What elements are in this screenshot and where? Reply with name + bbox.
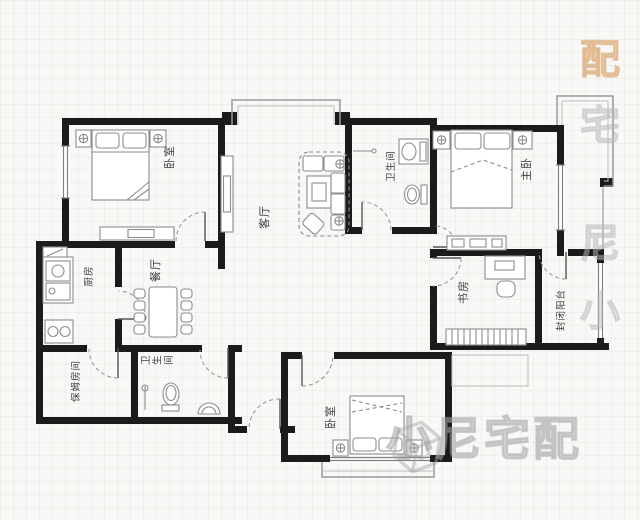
toilet-tank [421,185,427,204]
toilet-bowl [163,383,179,405]
window-bedroom1-left [61,146,70,198]
bathroom2-fixtures [142,383,220,414]
radiator [446,329,526,345]
sofa-seat [303,156,323,171]
dining-chair [134,325,145,334]
dining-chair [134,289,145,298]
bed [350,396,404,454]
dresser [447,236,506,250]
bedroom3-door-swing [302,356,333,386]
living-room-furniture [221,152,349,236]
dining-chair [181,289,192,298]
dining-chair [134,301,145,310]
floor-plan: 卧室 客厅 卫生间 主卧 书房 封闭阳台 餐厅 厨房 保姆房间 卫生间 卧室 小… [0,0,640,520]
floor-plan-canvas [0,0,640,520]
bathroom1-fixtures [353,139,428,204]
toilet-tank [162,405,179,411]
bottom-bay-window [322,462,434,477]
bedroom1-door-swing [176,212,205,241]
master-bedroom-furniture [433,130,532,250]
living-bay-window-inner [238,106,334,125]
bathroom2-door-swing [200,350,228,378]
maid-door-swing [89,349,118,378]
bedroom1-furniture [76,130,174,240]
balcony-door-swing [539,252,566,279]
living-bay-window [232,100,340,125]
tv-cabinet [221,156,233,232]
dining-furniture [134,287,192,337]
kitchen-counter [43,257,73,303]
desk [485,256,525,279]
dining-chair [181,325,192,334]
dining-chair [181,313,192,322]
top-right-bay-window [557,96,613,186]
study-furniture [446,256,526,345]
study-door-swing [433,258,461,286]
kitchen-fixtures [43,247,73,343]
ac-platform [452,355,528,386]
desk-chair [497,281,515,297]
window-master-right [556,165,565,230]
dining-chair [181,301,192,310]
bedroom3-furniture [333,355,528,456]
stove [45,320,73,343]
coffee-table [307,176,331,208]
dining-chair [134,313,145,322]
sofa-seat [331,173,345,193]
sofa-seat [331,194,345,214]
bathroom1-door-swing [362,202,391,230]
entry-door-swing [249,399,280,428]
dresser [100,227,174,240]
round-sink [198,403,220,414]
armchair [302,212,325,235]
top-right-bay-window-inner [562,101,608,181]
dining-table [149,287,177,337]
window-balcony-right [596,263,605,338]
vanity [399,139,428,164]
